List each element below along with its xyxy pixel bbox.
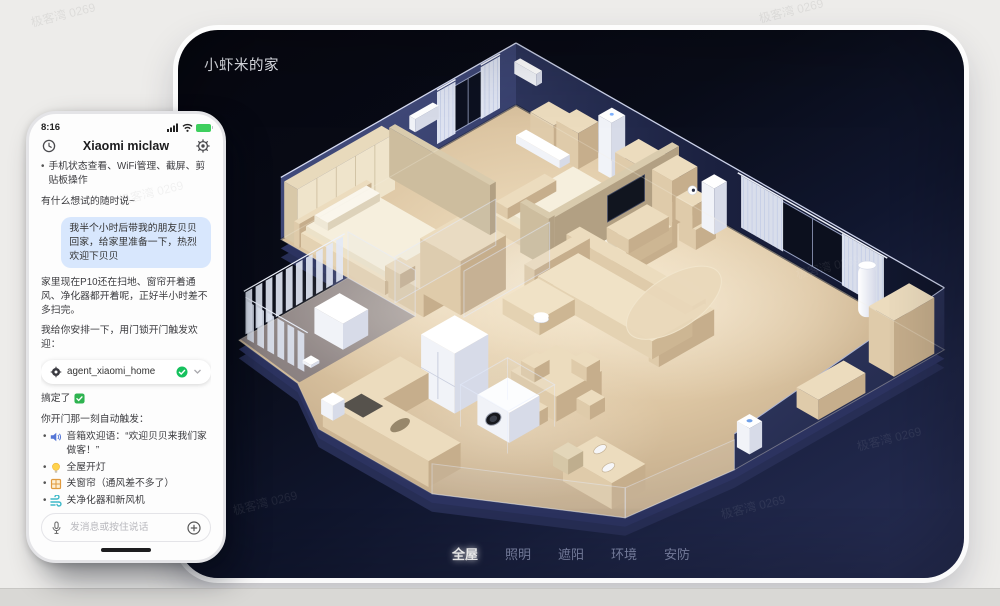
smart-home-panel: 小虾米的家 全屋 照明 遮阳 环境 安防 bbox=[178, 30, 964, 578]
battery-icon bbox=[196, 124, 211, 132]
trigger-item: 全屋开灯 bbox=[43, 461, 211, 475]
gear-icon[interactable] bbox=[195, 138, 211, 154]
assistant-plan-intro: 我给你安排一下，用门锁开门触发欢迎： bbox=[41, 324, 211, 352]
mic-icon[interactable] bbox=[51, 521, 62, 535]
plus-circle-icon[interactable] bbox=[187, 521, 201, 535]
speaker-icon bbox=[50, 431, 62, 443]
watermark: 极客湾 0269 bbox=[29, 0, 97, 31]
check-circle-icon bbox=[176, 366, 188, 378]
tab-security[interactable]: 安防 bbox=[664, 544, 690, 563]
page-root: { "watermark": { "text": "极客湾 0269" }, "… bbox=[0, 0, 1000, 606]
done-row: 搞定了 bbox=[41, 392, 211, 406]
chat-title: Xiaomi miclaw bbox=[57, 139, 195, 153]
trigger-intro: 你开门那一刻自动触发： bbox=[41, 413, 211, 427]
home-title: 小虾米的家 bbox=[204, 54, 279, 75]
user-message-bubble: 我半个小时后带我的朋友贝贝回家，给家里准备一下，热烈欢迎下贝贝 bbox=[61, 217, 211, 269]
message-input[interactable] bbox=[68, 521, 181, 534]
bulb-icon bbox=[50, 462, 62, 474]
trigger-item: 关窗帘（通风差不多了） bbox=[43, 477, 211, 491]
prompt-hint: 有什么想试的随时说~ bbox=[41, 195, 211, 209]
agent-pill[interactable]: agent_xiaomi_home bbox=[41, 360, 211, 384]
message-input-bar bbox=[41, 513, 211, 542]
tab-shading[interactable]: 遮阳 bbox=[558, 544, 584, 563]
status-time: 8:16 bbox=[41, 122, 60, 133]
phone-status-bar: 8:16 bbox=[41, 122, 211, 133]
page-bottom-strip bbox=[0, 588, 1000, 606]
room-tab-bar: 全屋 照明 遮阳 环境 安防 bbox=[452, 544, 690, 563]
chat-thread: 手机状态查看、WiFi管理、截屏、剪贴板操作 有什么想试的随时说~ 我半个小时后… bbox=[41, 160, 211, 507]
tab-environment[interactable]: 环境 bbox=[611, 544, 637, 563]
wind-icon bbox=[50, 495, 62, 507]
capability-bullet: 手机状态查看、WiFi管理、截屏、剪贴板操作 bbox=[41, 160, 211, 188]
chat-header: Xiaomi miclaw bbox=[41, 138, 211, 154]
signal-icon bbox=[167, 123, 179, 132]
check-box-icon bbox=[74, 393, 85, 404]
assistant-status-reply: 家里现在P10还在扫地、窗帘开着通风、净化器都开着呢，正好半小时差不多扫完。 bbox=[41, 276, 211, 318]
floorplan-3d-view[interactable] bbox=[178, 30, 964, 578]
watermark: 极客湾 0269 bbox=[757, 0, 825, 27]
agent-name: agent_xiaomi_home bbox=[67, 365, 171, 379]
trigger-item: 关净化器和新风机 bbox=[43, 494, 211, 507]
window-icon bbox=[50, 478, 62, 490]
trigger-item: 音箱欢迎语：“欢迎贝贝来我们家做客！” bbox=[43, 430, 211, 458]
agent-icon bbox=[50, 366, 62, 378]
phone-mockup: 8:16 Xiaomi miclaw bbox=[26, 111, 226, 563]
chevron-down-icon bbox=[193, 368, 202, 375]
history-icon[interactable] bbox=[41, 138, 57, 154]
tab-whole-house[interactable]: 全屋 bbox=[452, 544, 478, 563]
tab-lighting[interactable]: 照明 bbox=[505, 544, 531, 563]
home-indicator bbox=[101, 548, 151, 552]
wifi-icon bbox=[182, 123, 193, 132]
